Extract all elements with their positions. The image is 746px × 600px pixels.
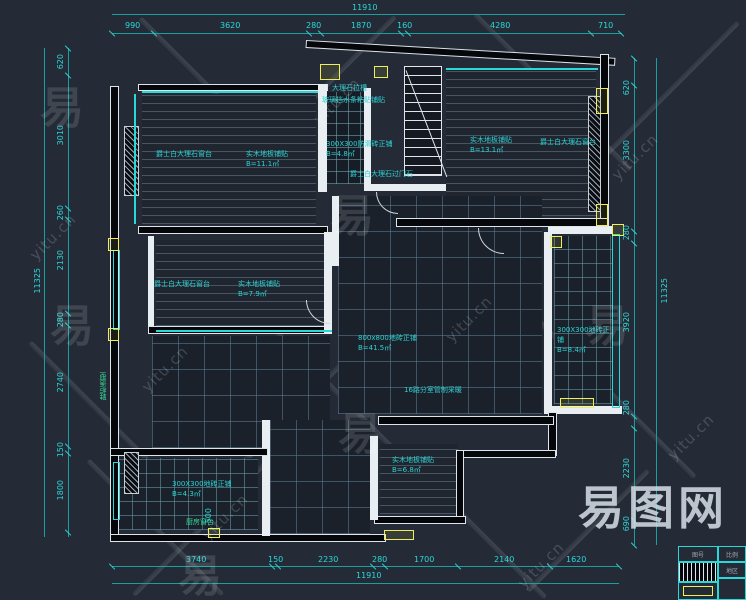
dim-top-seg: 280 bbox=[306, 21, 321, 30]
wall-bed2-bottom bbox=[396, 218, 608, 227]
label-bed2-area: B=13.1㎡ bbox=[470, 146, 512, 156]
dim-top-seg: 3620 bbox=[220, 21, 240, 30]
label-shoe-cabinet: 鞋柜造型 bbox=[99, 372, 109, 400]
dimline-right-segments bbox=[634, 58, 635, 545]
label-study-floor-line: 实木地板铺贴 bbox=[238, 280, 280, 290]
dim-left-seg: 2740 bbox=[56, 372, 65, 392]
dim-right-seg: 690 bbox=[622, 516, 631, 531]
titleblock-cell-number: 图号 bbox=[678, 546, 718, 562]
window-left-kitchen bbox=[113, 462, 120, 520]
label-living-area: B=41.5㎡ bbox=[358, 344, 417, 354]
wall-corridor-left bbox=[262, 420, 270, 536]
titleblock-cell-region: 地区 bbox=[718, 562, 746, 578]
label-bed2-floor: 实木地板铺贴 B=13.1㎡ bbox=[470, 136, 512, 156]
edge-hall-top bbox=[156, 330, 332, 332]
label-bed3-floor-line: 实木地板铺贴 bbox=[392, 456, 434, 466]
titleblock-cell-empty bbox=[718, 578, 746, 600]
titleblock-box-icon bbox=[678, 582, 718, 600]
dim-right-seg: 3300 bbox=[622, 140, 631, 160]
window-left-study bbox=[113, 250, 120, 330]
yellow-marker bbox=[108, 328, 119, 341]
wall-living-left bbox=[332, 196, 339, 266]
dim-left-seg: 3010 bbox=[56, 125, 65, 145]
yellow-marker bbox=[560, 398, 594, 408]
window-line-bed1-left bbox=[134, 94, 136, 224]
dimline-bottom-segments bbox=[112, 566, 619, 567]
floor-balcony bbox=[554, 236, 612, 404]
dim-top-seg: 4280 bbox=[490, 21, 510, 30]
dim-left-seg: 2130 bbox=[56, 250, 65, 270]
titleblock-hatch-icon bbox=[678, 562, 718, 582]
label-bed1-sill: 爵士白大理石窗台 bbox=[156, 150, 212, 160]
wall-bath2-bottom bbox=[374, 516, 466, 524]
label-bed3-floor: 实木地板铺贴 B=6.8㎡ bbox=[392, 456, 434, 476]
dim-bottom-seg: 1700 bbox=[414, 555, 434, 564]
wall-outer-bottom bbox=[110, 534, 386, 542]
dimline-left-overall bbox=[44, 48, 45, 537]
titleblock-cell-scale: 比例 bbox=[718, 546, 746, 562]
watermark-text: yitu.cn bbox=[26, 210, 80, 264]
floor-bedroom-bottom bbox=[380, 444, 458, 514]
label-bed1-floor: 实木地板铺贴 B=11.1㎡ bbox=[246, 150, 288, 170]
dimline-right-overall bbox=[656, 58, 657, 545]
watermark-streak bbox=[28, 341, 152, 465]
label-balcony-floor-line: 300X300地砖正铺 bbox=[557, 326, 611, 346]
dim-top-seg: 160 bbox=[397, 21, 412, 30]
wall-bath2-left bbox=[370, 436, 378, 520]
watermark-text: yitu.cn bbox=[664, 410, 718, 464]
dim-right-seg: 3920 bbox=[622, 312, 631, 332]
label-balcony-floor: 300X300地砖正铺 B=8.4㎡ bbox=[557, 326, 611, 355]
dimline-left-segments bbox=[68, 48, 69, 537]
yellow-marker bbox=[374, 66, 388, 78]
dim-top-seg: 710 bbox=[598, 21, 613, 30]
dim-bottom-seg: 2230 bbox=[318, 555, 338, 564]
dim-left-seg: 150 bbox=[56, 442, 65, 457]
dim-left-seg: 620 bbox=[56, 54, 65, 69]
label-bed2-floor-line: 实木地板铺贴 bbox=[470, 136, 512, 146]
dimline-bottom-overall bbox=[112, 583, 619, 584]
yellow-marker bbox=[596, 88, 608, 114]
label-bath-groove: 大理石拉槽 bbox=[332, 84, 367, 94]
dim-right-seg: 280 bbox=[622, 225, 631, 240]
watermark-streak bbox=[526, 469, 650, 593]
wall-top-bedroom1 bbox=[138, 84, 328, 91]
floor-living bbox=[338, 196, 542, 414]
dim-left-seg: 280 bbox=[56, 312, 65, 327]
label-study-sill: 爵士白大理石窗台 bbox=[154, 280, 210, 290]
label-bed3-area: B=6.8㎡ bbox=[392, 466, 434, 476]
label-bath-waterbar: 玻璃挡水条粘贴铺贴 bbox=[322, 96, 385, 106]
watermark-glyph: 易 bbox=[178, 540, 222, 600]
wall-under-stairs bbox=[364, 184, 446, 191]
label-living-floor: 800x800地砖正铺 B=41.5㎡ bbox=[358, 334, 417, 354]
wall-living-balcony bbox=[544, 232, 552, 414]
label-bath-floor: 300X300防滑砖正铺 B=4.8㎡ bbox=[326, 140, 393, 160]
yitu-logo: 易图网 bbox=[578, 472, 728, 538]
dim-right-seg: 280 bbox=[622, 400, 631, 415]
label-heating-note: 16路分室管制采暖 bbox=[404, 386, 462, 396]
yellow-marker bbox=[384, 530, 414, 540]
dimline-top-segments bbox=[112, 33, 622, 34]
wall-bottom-right bbox=[456, 450, 556, 458]
wall-living-bottom bbox=[378, 416, 554, 425]
hatch-column-kitchen bbox=[124, 452, 139, 494]
dim-top-seg: 1870 bbox=[351, 21, 371, 30]
dim-right-seg: 2230 bbox=[622, 458, 631, 478]
hatch-column-left bbox=[124, 126, 139, 196]
window-line-bed1-top bbox=[142, 91, 318, 93]
label-living-floor-line: 800x800地砖正铺 bbox=[358, 334, 417, 344]
yellow-marker bbox=[320, 64, 340, 80]
dim-bottom-seg: 1620 bbox=[566, 555, 586, 564]
label-bath-area: B=4.8㎡ bbox=[326, 150, 393, 160]
wall-balcony-top bbox=[548, 226, 612, 234]
dim-bottom-overall: 11910 bbox=[356, 571, 381, 580]
balcony-glass-edge bbox=[612, 234, 620, 408]
label-kitchen-floor-line: 300X300地砖正铺 bbox=[172, 480, 232, 490]
yellow-marker bbox=[596, 204, 608, 226]
dim-top-overall: 11910 bbox=[352, 3, 377, 12]
label-study-floor: 实木地板铺贴 B=7.9㎡ bbox=[238, 280, 280, 300]
label-kitchen-floor: 300X300地砖正铺 B=4.3㎡ bbox=[172, 480, 232, 500]
label-kitchen-area: B=4.3㎡ bbox=[172, 490, 232, 500]
dim-bottom-seg: 2140 bbox=[494, 555, 514, 564]
dim-left-seg: 1800 bbox=[56, 480, 65, 500]
dim-kitchen-depth: 500 bbox=[204, 508, 213, 523]
yellow-marker bbox=[108, 238, 119, 251]
titleblock: 图号 比例 地区 bbox=[678, 546, 746, 600]
label-bed1-area: B=11.1㎡ bbox=[246, 160, 288, 170]
yellow-marker bbox=[550, 236, 562, 248]
floor-corridor bbox=[270, 420, 370, 534]
wall-top-slanted bbox=[306, 40, 616, 66]
window-line-bed2-top bbox=[446, 68, 598, 70]
label-bath-floor-line: 300X300防滑砖正铺 bbox=[326, 140, 393, 150]
dim-top-seg: 990 bbox=[125, 21, 140, 30]
dim-bottom-seg: 280 bbox=[372, 555, 387, 564]
dim-bottom-seg: 3740 bbox=[186, 555, 206, 564]
dimline-top-overall bbox=[112, 14, 625, 15]
cad-floorplan-canvas: 爵士白大理石窗台 实木地板铺贴 B=11.1㎡ 大理石拉槽 玻璃挡水条粘贴铺贴 … bbox=[0, 0, 746, 600]
label-study-area: B=7.9㎡ bbox=[238, 290, 280, 300]
wall-bed1-bottom bbox=[138, 226, 328, 234]
wall-bath2-right bbox=[456, 450, 464, 524]
label-bed1-floor-line: 实木地板铺贴 bbox=[246, 150, 288, 160]
dim-right-overall: 11325 bbox=[660, 278, 669, 303]
dim-left-seg: 260 bbox=[56, 205, 65, 220]
label-balcony-area: B=8.4㎡ bbox=[557, 346, 611, 356]
dim-left-overall: 11325 bbox=[33, 268, 42, 293]
label-bed2-sill: 爵士白大理石窗台 bbox=[540, 138, 596, 148]
yellow-marker bbox=[208, 528, 220, 538]
label-threshold: 爵士白大理石过门石 bbox=[350, 170, 413, 180]
